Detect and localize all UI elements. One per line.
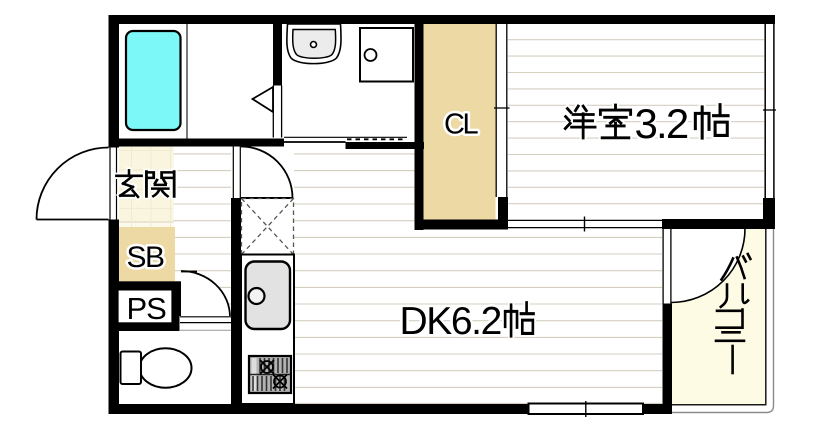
svg-text:CL: CL [444,109,478,141]
svg-text:DK6.2: DK6.2 [400,300,501,343]
svg-text:SB: SB [127,241,165,274]
svg-text:PS: PS [127,291,167,326]
svg-text:3.2: 3.2 [635,100,688,147]
